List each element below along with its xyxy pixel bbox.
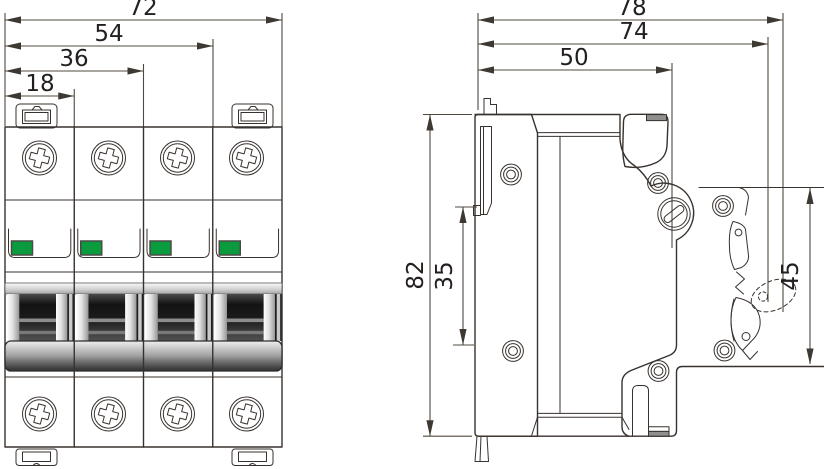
arrowhead (58, 92, 74, 99)
dimension-total-depth: 78 (478, 0, 783, 312)
rivet (648, 361, 669, 382)
dim-label-78: 78 (617, 0, 646, 21)
arrowhead (197, 42, 213, 49)
bottom-slot (633, 386, 649, 437)
arrowhead (426, 420, 433, 436)
terminal-screw-bottom-4 (230, 397, 264, 431)
arrowhead (426, 115, 433, 131)
arrowhead (806, 349, 813, 365)
side-view: 78 74 50 (403, 0, 824, 462)
trip-lever (729, 222, 760, 360)
terminal-screw-top-4 (230, 141, 264, 175)
arrowhead (767, 16, 783, 23)
dimension-module-width: 18 (5, 71, 74, 127)
top-hook (484, 99, 497, 115)
slotted-screw (658, 198, 690, 230)
dim-label-18: 18 (25, 71, 54, 97)
din-rail-clip-bottom-right (232, 449, 273, 466)
terminal-screw-top-2 (92, 141, 126, 175)
dim-label-82: 82 (403, 260, 429, 289)
arrowhead (478, 16, 494, 23)
dim-label-74: 74 (619, 19, 648, 45)
arrowhead (459, 329, 466, 345)
latch-edge (739, 188, 749, 216)
dimension-rail-slot: 35 (432, 207, 477, 345)
housing-profile (475, 115, 694, 437)
dim-label-72: 72 (128, 0, 157, 21)
dim-label-45: 45 (778, 261, 804, 290)
housing-bottom-edge (479, 367, 824, 437)
arrowhead (656, 66, 672, 73)
handle-grip-tip (647, 115, 667, 121)
arrowhead (128, 67, 144, 74)
arrowhead (459, 207, 466, 223)
dim-label-50: 50 (559, 45, 588, 71)
front-view: 72 54 36 18 (5, 0, 282, 466)
dim-label-54: 54 (94, 21, 123, 47)
back-plate (475, 115, 538, 437)
din-clip-slider (481, 127, 492, 215)
din-rail-clip-bottom-left (16, 449, 57, 466)
rivet (713, 196, 734, 217)
dimension-body-depth: 50 (478, 45, 672, 248)
terminal-screw-top-1 (23, 141, 57, 175)
technical-drawing-canvas: 72 54 36 18 (0, 0, 824, 469)
terminal-screw-bottom-2 (92, 397, 126, 431)
terminal-screw-bottom-1 (23, 397, 57, 431)
arrowhead (5, 16, 21, 23)
mcb-dimension-drawing: 72 54 36 18 (0, 0, 824, 469)
dim-label-36: 36 (59, 46, 88, 72)
dim-label-35: 35 (432, 261, 458, 290)
arrowhead (266, 16, 282, 23)
toggle-handle (623, 114, 668, 167)
terminal-screw-top-3 (161, 141, 195, 175)
arrowhead (752, 40, 768, 47)
arrowhead (5, 67, 21, 74)
rivet (503, 341, 524, 362)
rivet (501, 164, 522, 185)
din-rail-clip-top-left (16, 104, 57, 128)
arrowhead (478, 66, 494, 73)
rivet (714, 340, 735, 361)
terminal-screw-bottom-3 (161, 397, 195, 431)
arrowhead (5, 42, 21, 49)
din-rail-clip-top-right (232, 104, 273, 128)
arrowhead (5, 92, 21, 99)
din-clip-foot (475, 436, 489, 461)
bottom-tab (649, 431, 670, 436)
arrowhead (478, 40, 494, 47)
arrowhead (806, 188, 813, 204)
